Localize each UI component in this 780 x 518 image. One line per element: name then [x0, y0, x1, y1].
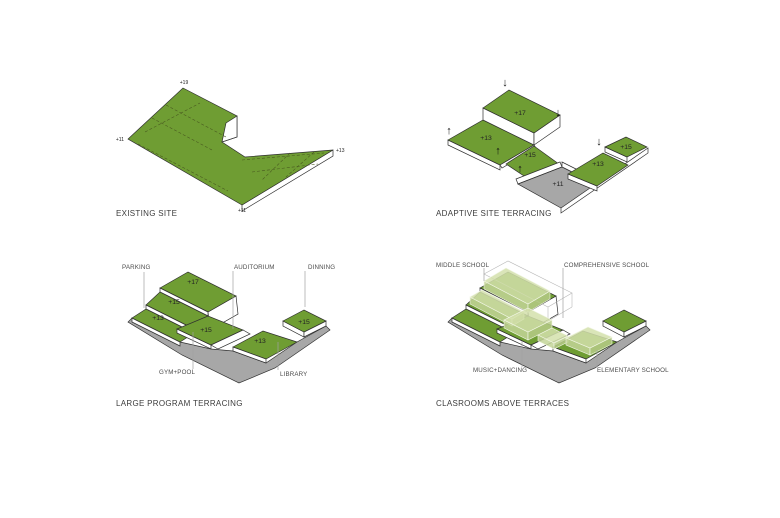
diagram-canvas: +19 +11 +13 +11 EXISTING SITE +17 +13 +1… [0, 0, 780, 518]
panel-caption: EXISTING SITE [116, 209, 177, 218]
panel-caption: CLASROOMS ABOVE TERRACES [436, 399, 569, 408]
school-label-middle: MIDDLE SCHOOL [436, 262, 490, 269]
school-label-comprehensive: COMPREHENSIVE SCHOOL [564, 262, 650, 269]
up-arrow-icon: ↑ [495, 145, 501, 157]
elevation-label: +13 [336, 148, 345, 154]
elevation-label: +17 [187, 279, 199, 286]
program-label-parking: PARKING [122, 264, 150, 271]
panel-adaptive-terracing: +17 +13 +15 +11 +13 +15 ↓ ↓ ↑ ↑ ↑ ↓ ADAP… [436, 77, 648, 218]
terraced-site-base [128, 272, 330, 383]
down-arrow-icon: ↓ [502, 77, 508, 89]
program-label-library: LIBRARY [280, 371, 307, 378]
elevation-label: +15 [620, 144, 632, 151]
panel-caption: LARGE PROGRAM TERRACING [116, 399, 243, 408]
elevation-label: +11 [552, 181, 563, 188]
down-arrow-icon: ↓ [555, 107, 561, 119]
elevation-label: +11 [116, 137, 124, 143]
up-arrow-icon: ↑ [517, 163, 523, 175]
elevation-label: +17 [514, 110, 526, 117]
down-arrow-icon: ↓ [596, 136, 602, 148]
program-label-gym-pool: GYM+POOL [159, 369, 196, 376]
elevation-label: +19 [180, 80, 189, 86]
panel-existing-site: +19 +11 +13 +11 EXISTING SITE [116, 80, 345, 218]
elevation-label: +15 [168, 299, 180, 306]
panel-classrooms-above: MIDDLE SCHOOL COMPREHENSIVE SCHOOL MUSIC… [436, 261, 669, 408]
panel-large-program: +17 +15 +13 +15 +13 +15 PARKING AUDITORI… [116, 264, 335, 408]
school-label-music-dancing: MUSIC+DANCING [473, 367, 527, 374]
school-label-elementary: ELEMENTARY SCHOOL [597, 367, 669, 374]
panel-caption: ADAPTIVE SITE TERRACING [436, 209, 552, 218]
diagram-sheet: +19 +11 +13 +11 EXISTING SITE +17 +13 +1… [0, 0, 780, 518]
elevation-label: +15 [200, 327, 212, 334]
elevation-label: +13 [480, 135, 492, 142]
elevation-label: +13 [592, 161, 604, 168]
program-label-dinning: DINNING [308, 264, 335, 271]
elevation-label: +15 [298, 319, 310, 326]
elevation-label: +13 [152, 315, 164, 322]
existing-site-plane [128, 88, 333, 205]
elevation-label: +11 [238, 208, 246, 214]
elevation-label: +15 [524, 152, 536, 159]
program-label-auditorium: AUDITORIUM [234, 264, 275, 271]
up-arrow-icon: ↑ [446, 125, 452, 137]
elevation-label: +13 [254, 338, 266, 345]
